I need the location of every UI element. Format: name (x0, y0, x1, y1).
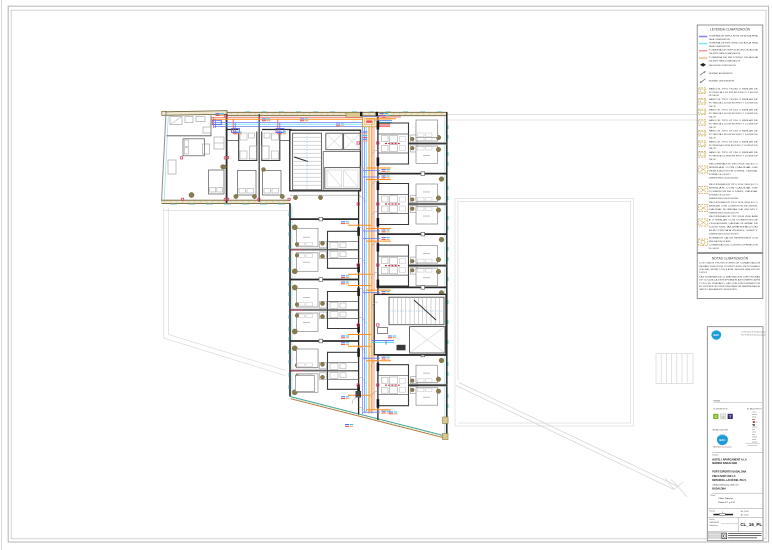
svg-text:POTENCIA 2.46 KW EN FRÍO Y 3.1: POTENCIA 2.46 KW EN FRÍO Y 3.10KW DE (709, 101, 759, 104)
svg-text:CALOR: CALOR (709, 105, 716, 108)
svg-text:Tel: 93 303 41 31 info@bacec: Tel: 93 303 41 31 info@bacecg.com (741, 331, 766, 333)
svg-text:MUNTANT DESCENDENTE: MUNTANT DESCENDENTE (709, 79, 735, 82)
svg-text:A1: 1:100: A1: 1:100 (741, 513, 749, 516)
svg-text:Y300/4000MM, CAUDAL NOMINAL DE: Y300/4000MM, CAUDAL NOMINAL DE (709, 222, 759, 225)
svg-text:POTENCIA 6.6KW EN FRÍO Y 8.63K: POTENCIA 6.6KW EN FRÍO Y 8.63KW DE (709, 144, 759, 147)
svg-text:VÁLVULA DE ZONIFICACIÓN: VÁLVULA DE ZONIFICACIÓN (709, 64, 737, 67)
svg-text:FANCOIL TIPO UTC30 O SIMILAR D: FANCOIL TIPO UTC30 O SIMILAR DE (709, 151, 759, 154)
svg-text:FANCOIL TIPO YKC80 O SIMILAR D: FANCOIL TIPO YKC80 O SIMILAR DE (709, 98, 759, 101)
svg-text:LEYENDA CLIMATIZACIÓN: LEYENDA CLIMATIZACIÓN (710, 27, 751, 32)
svg-text:(PE-XA), SERIE 5 PN-6 ATM, SEG: (PE-XA), SERIE 5 PN-6 ATM, SEGÚN UNE-EN … (699, 268, 760, 271)
svg-text:NOTAS CLIMATIZACIÓN: NOTAS CLIMATIZACIÓN (712, 255, 749, 260)
svg-text:POTENCIA 3.06 KW EN FRÍO Y 3.9: POTENCIA 3.06 KW EN FRÍO Y 3.96KW DE (709, 112, 759, 115)
svg-text:Clima Tuberías: Clima Tuberías (718, 497, 734, 500)
svg-text:CLIMATIZACIÓN CON RECUPERACIÓN: CLIMATIZACIÓN CON RECUPERACIÓN (709, 243, 759, 246)
svg-text:Fecha:: Fecha: (710, 519, 716, 521)
svg-text:POTENCIA 1.65 KW EN FRÍO Y 1.8: POTENCIA 1.65 KW EN FRÍO Y 1.80 KW (709, 91, 758, 94)
svg-text:INSTAL·LACIONS:: INSTAL·LACIONS: (712, 429, 728, 432)
svg-text:CALOR: CALOR (709, 126, 716, 129)
svg-text:POTENCIA 5.66 KW EN FRÍO Y 6.6: POTENCIA 5.66 KW EN FRÍO Y 6.67KW DE (709, 133, 759, 136)
svg-text:CALOR: CALOR (709, 137, 716, 140)
svg-text:Projecte:: Projecte: (712, 454, 719, 457)
svg-text:Planta 4-7 y 9-12: Planta 4-7 y 9-12 (718, 501, 735, 504)
svg-text:POTENCIA 10.9KW EN FRÍO Y 13.9: POTENCIA 10.9KW EN FRÍO Y 13.9KW DE (709, 154, 759, 157)
svg-text:CALOR: CALOR (709, 147, 716, 150)
svg-text:CONEXIÓN DE 0.99M3, CAUDAL: CONEXIÓN DE 0.99M3, CAUDAL (709, 190, 759, 193)
svg-text:CALOR: CALOR (709, 158, 716, 161)
svg-text:RECUPERADOR TIPO RUE 4500 AMB: RECUPERADOR TIPO RUE 4500 AMB (709, 215, 759, 218)
svg-text:BADALONA: BADALONA (712, 487, 726, 490)
svg-text:CALIENTE PARA CLIMATIZACIÓN: CALIENTE PARA CLIMATIZACIÓN (709, 52, 741, 55)
svg-text:DE CALOR: DE CALOR (709, 247, 720, 250)
svg-text:Escala:: Escala: (710, 510, 716, 512)
svg-text:FIRMAS:: FIRMAS: (714, 400, 721, 403)
svg-text:PORT ESPORTIU BADALONA: PORT ESPORTIU BADALONA (712, 470, 746, 473)
svg-text:1200 M3, ALIMENTACIÓN: 1200 M3, ALIMENTACIÓN (709, 226, 759, 229)
svg-text:TODO SU TRAZADO. LAS QUE DISCU: TODO SU TRAZADO. LAS QUE DISCURRAN POR (699, 282, 761, 285)
svg-text:15875-2: 15875-2 (699, 272, 708, 274)
svg-text:FINCA NUM 4 DE LA: FINCA NUM 4 DE LA (712, 475, 735, 478)
svg-text:SIMILAR CON CONEXIÓN DE 450M3,: SIMILAR CON CONEXIÓN DE 450M3, (709, 205, 759, 208)
svg-text:EL ARQUITECTO: EL ARQUITECTO (747, 408, 763, 411)
svg-text:FANCOIL TIPO UTC30 O SIMILAR D: FANCOIL TIPO UTC30 O SIMILAR DE (709, 140, 759, 143)
svg-text:C/Eduard Maristany - Moll nord: C/Eduard Maristany - Moll nord (712, 484, 738, 487)
svg-text:NOMINAL DE 0.66 M3 Y: NOMINAL DE 0.66 M3 Y (709, 193, 732, 196)
svg-text:FANCOIL TIPO UTC20 O SIMILAR D: FANCOIL TIPO UTC20 O SIMILAR DE (709, 119, 759, 122)
svg-text:EL EXTERIOR DISPONDRÁN DE BARR: EL EXTERIOR DISPONDRÁN DE BARRERA DE (699, 285, 761, 288)
svg-text:NOMINAL DE 0.06 M3 Y: NOMINAL DE 0.06 M3 Y (709, 173, 732, 176)
svg-text:SIMILAR CON CAUDAL DE: SIMILAR CON CAUDAL DE (709, 186, 759, 189)
svg-text:DIMENSIONES 2100X1500X 295: DIMENSIONES 2100X1500X 295 (709, 213, 740, 215)
svg-text:PARA CLIMATIZACIÓN: PARA CLIMATIZACIÓN (709, 45, 731, 48)
svg-text:SIMILAR CON CAUDAL DE: SIMILAR CON CAUDAL DE (709, 166, 759, 169)
svg-text:DIMENSIONES 1600X1200X380: DIMENSIONES 1600X1200X380 (709, 198, 739, 200)
svg-text:REPARCEL·LACIÓ DEL PAU 1: REPARCEL·LACIÓ DEL PAU 1 (712, 479, 747, 482)
svg-text:Referencia:: Referencia: (710, 524, 719, 527)
svg-text:SERÁN TUBOS DE POLIETILENO RET: SERÁN TUBOS DE POLIETILENO RETICULADO (699, 265, 760, 268)
svg-text:CALIENTE PARA CLIMATIZACIÓN: CALIENTE PARA CLIMATIZACIÓN (709, 59, 741, 62)
svg-text:TUBERIA DE IMPULSIÓN DE AGUA F: TUBERIA DE IMPULSIÓN DE AGUA FRÍA (709, 34, 759, 37)
svg-text:DE COQUILLA DE ESPUMA ELASTOMÉ: DE COQUILLA DE ESPUMA ELASTOMÉRICA EN (699, 279, 761, 282)
svg-text:DIMENSIONES 1200X1000X330: DIMENSIONES 1200X1000X330 (709, 177, 739, 179)
svg-text:TUBERIA DE IMPULSIÓN DE AGUA: TUBERIA DE IMPULSIÓN DE AGUA (709, 49, 759, 52)
svg-text:A3: 1:200: A3: 1:200 (741, 510, 749, 513)
svg-text:ELÉCTRICA A 4X400V, 50HZ Y: ELÉCTRICA A 4X400V, 50HZ Y (709, 229, 759, 232)
svg-text:E O SIMILAR CON CONEXIÓN DE: E O SIMILAR CON CONEXIÓN DE (709, 219, 759, 222)
svg-text:RECUPERADOR TIPO RCE 2600-EC O: RECUPERADOR TIPO RCE 2600-EC O (709, 183, 759, 186)
svg-text:CL_16_PL: CL_16_PL (740, 522, 762, 527)
svg-text:BAC: BAC (719, 438, 725, 442)
svg-text:HOTEL I APARCAMENT A LA: HOTEL I APARCAMENT A LA (712, 458, 747, 461)
svg-text:LOS TUBOS PROTECTORES DE CLIMA: LOS TUBOS PROTECTORES DE CLIMATIZACIÓN (699, 262, 761, 265)
svg-text:TUBERIA DE RETORNO DE AGUA: TUBERIA DE RETORNO DE AGUA (709, 56, 759, 59)
svg-text:⬠: ⬠ (722, 415, 725, 419)
svg-text:MARINA BADALONA: MARINA BADALONA (712, 462, 737, 465)
svg-text:FANCOIL TIPO YKC80 O SIMILAR D: FANCOIL TIPO YKC80 O SIMILAR DE (709, 87, 759, 90)
svg-text:DE CALOR: DE CALOR (709, 94, 720, 97)
svg-text:CALOR: CALOR (709, 115, 716, 118)
svg-text:TUBERIA DE RETORNO DE AGUA FRÍ: TUBERIA DE RETORNO DE AGUA FRÍA (709, 42, 759, 45)
svg-text:Fax: 93 303 45 33 www.bacecg: Fax: 93 303 45 33 www.bacecg.com (741, 334, 767, 336)
svg-text:EL PROMOTOR: EL PROMOTOR (714, 409, 729, 411)
svg-text:Plano:: Plano: (711, 495, 716, 497)
svg-text:VENTILACIÓN DE 0.09M3, CAUDAL: VENTILACIÓN DE 0.09M3, CAUDAL (709, 170, 759, 173)
svg-text:MUNTANT ASCENDENTE: MUNTANT ASCENDENTE (709, 72, 733, 75)
svg-text:VAPOR Y AISLAMIENTO SEGÚN RITE: VAPOR Y AISLAMIENTO SEGÚN RITE (699, 288, 737, 291)
svg-text:FANCOIL TIPO UTC30 O SIMILAR D: FANCOIL TIPO UTC30 O SIMILAR DE (709, 130, 759, 133)
svg-text:RENOVACIÓN DE AIRE: RENOVACIÓN DE AIRE (709, 240, 731, 243)
svg-text:BAC: BAC (713, 333, 719, 337)
svg-text:BOMBA DE CALOR REVERSIBLE CON: BOMBA DE CALOR REVERSIBLE CON (709, 236, 759, 239)
svg-text:FANCOIL TIPO UTC10 O SIMILAR D: FANCOIL TIPO UTC10 O SIMILAR DE (709, 109, 759, 112)
svg-text:5: 5 (722, 512, 723, 514)
svg-text:CAUDAL NOMINAL DE 450 M3 Y: CAUDAL NOMINAL DE 450 M3 Y (709, 208, 759, 211)
svg-text:POTENCIA 4.01 KW EN FRÍO Y 5.2: POTENCIA 4.01 KW EN FRÍO Y 5.27KW DE (709, 123, 759, 126)
svg-text:LAS TUBERÍAS DE CLIMATIZACIÓN: LAS TUBERÍAS DE CLIMATIZACIÓN DISPONDRÁN (699, 275, 761, 278)
svg-text:DIMENSIONES 2K12X1700 MTS: DIMENSIONES 2K12X1700 MTS (709, 233, 739, 235)
svg-text:RECUPERADOR TIPO RCE 260-EC O: RECUPERADOR TIPO RCE 260-EC O (709, 163, 759, 166)
svg-text:RECUPERADOR TIPO RCE 4500-EC O: RECUPERADOR TIPO RCE 4500-EC O (709, 201, 759, 204)
svg-text:10/11/2019: 10/11/2019 (710, 522, 719, 524)
svg-text:PARA CLIMATIZACIÓN: PARA CLIMATIZACIÓN (709, 38, 731, 41)
